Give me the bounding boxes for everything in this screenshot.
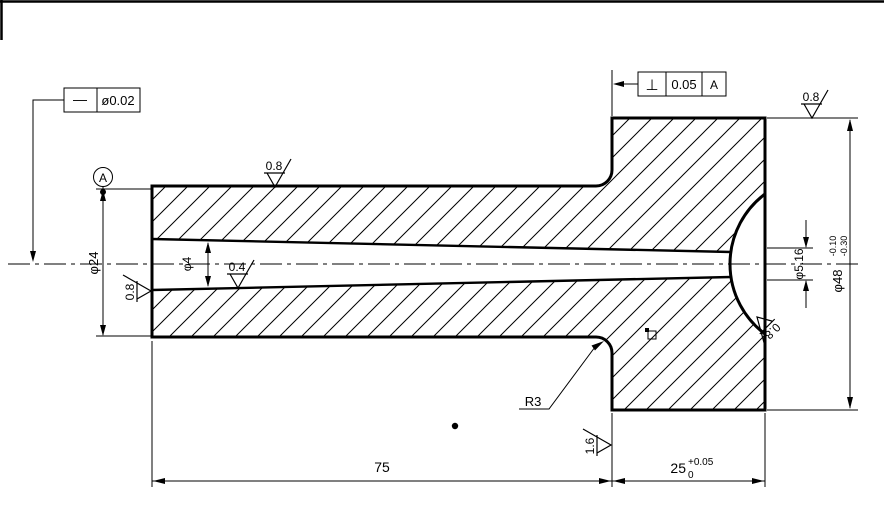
tol-upper: -0.10 — [828, 236, 838, 257]
arrow-up — [847, 119, 853, 131]
small-square-dot — [645, 328, 649, 332]
roughness-shoulder: 1.6 — [583, 429, 611, 456]
sheet-border — [0, 0, 884, 40]
dim-text: φ5.16 — [792, 248, 806, 279]
straightness-icon: — — [73, 91, 87, 107]
dim-flange-width: 25 — [670, 460, 686, 476]
arrow-down — [847, 397, 853, 409]
dim-outer-diameter: φ24 — [86, 189, 152, 336]
stray-dot — [452, 423, 458, 429]
straightness-arrow — [30, 251, 36, 262]
roughness-value: 0.4 — [229, 260, 246, 274]
dim-text: φ48 — [830, 270, 845, 293]
arrow-25-left — [613, 478, 625, 484]
roughness-value: 0.8 — [803, 90, 820, 104]
drawing-canvas: — ø0.02 ⊥ 0.05 A A φ24 φ4 — [0, 0, 884, 521]
arrow-down — [205, 276, 211, 287]
arrow-up — [205, 242, 211, 253]
roughness-bore-inner: 0.4 — [227, 260, 254, 288]
tol-lower: -0.30 — [839, 236, 849, 257]
fillet-radius-text: R3 — [525, 394, 542, 409]
flange-width-tol-upper: +0.05 — [688, 457, 714, 468]
engineering-drawing: — ø0.02 ⊥ 0.05 A A φ24 φ4 — [0, 0, 884, 521]
roughness-value: 0.8 — [266, 159, 283, 173]
arrow-25-right — [752, 478, 764, 484]
perpendicularity-frame: ⊥ 0.05 A — [612, 70, 726, 116]
straightness-tolerance: ø0.02 — [101, 93, 134, 108]
dim-text: φ4 — [180, 256, 194, 271]
perpendicularity-icon: ⊥ — [645, 77, 658, 94]
ext-lines — [96, 189, 152, 336]
roughness-top: 0.8 — [264, 159, 291, 187]
roughness-value: 0.8 — [123, 283, 137, 300]
flange-width-tol-lower: 0 — [688, 470, 694, 481]
roughness-bore-left: 0.8 — [123, 275, 151, 302]
fillet-callout: R3 — [519, 341, 604, 409]
straightness-leader — [33, 100, 64, 254]
arrow-down — [803, 237, 809, 248]
arrow-75-right — [599, 478, 611, 484]
straightness-frame: — ø0.02 — [30, 88, 140, 262]
perpendicularity-tolerance: 0.05 — [671, 77, 696, 92]
dim-text: φ24 — [86, 252, 101, 275]
dim-body-length: 75 — [374, 459, 390, 475]
roughness-value: 1.6 — [583, 437, 597, 454]
arrow-75-left — [153, 478, 165, 484]
perpendicularity-arrow — [613, 81, 624, 87]
arrow-down — [100, 325, 106, 336]
perpendicularity-datum-ref: A — [710, 78, 718, 92]
arrow-up — [803, 280, 809, 291]
roughness-flange-top: 0.8 — [801, 90, 828, 118]
datum-label: A — [99, 171, 107, 185]
